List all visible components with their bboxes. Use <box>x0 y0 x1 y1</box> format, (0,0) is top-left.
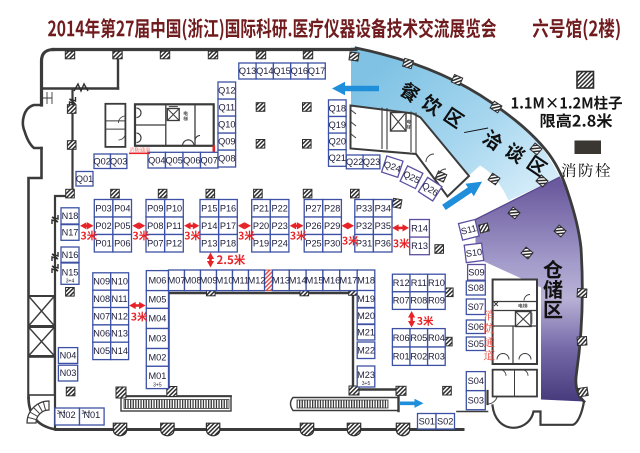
svg-text:P19: P19 <box>253 238 269 248</box>
svg-text:P13: P13 <box>201 238 217 248</box>
svg-text:N15: N15 <box>62 267 79 277</box>
svg-text:M19: M19 <box>357 294 375 304</box>
svg-text:R02: R02 <box>410 351 427 361</box>
svg-text:M02: M02 <box>148 353 166 363</box>
svg-text:Q21: Q21 <box>329 153 346 163</box>
svg-text:N13: N13 <box>111 329 128 339</box>
svg-text:M23: M23 <box>357 370 375 380</box>
svg-text:M05: M05 <box>148 295 166 305</box>
svg-text:R03: R03 <box>428 351 445 361</box>
svg-text:P08: P08 <box>147 221 163 231</box>
svg-text:S10: S10 <box>465 247 482 259</box>
svg-text:P20: P20 <box>253 221 269 231</box>
svg-text:3+4: 3+4 <box>57 410 66 416</box>
svg-text:M10: M10 <box>216 275 234 285</box>
svg-text:R14: R14 <box>411 223 428 233</box>
svg-text:Q14: Q14 <box>256 66 273 76</box>
svg-text:P16: P16 <box>220 203 236 213</box>
svg-text:P24: P24 <box>272 238 288 248</box>
svg-text:P06: P06 <box>114 238 130 248</box>
svg-text:Q01: Q01 <box>76 174 93 184</box>
svg-text:Q07: Q07 <box>201 155 218 165</box>
svg-text:S08: S08 <box>468 283 484 293</box>
svg-text:P10: P10 <box>166 203 182 213</box>
svg-text:P21: P21 <box>253 203 269 213</box>
svg-text:M03: M03 <box>148 334 166 344</box>
svg-text:N18: N18 <box>62 211 79 221</box>
svg-text:Q13: Q13 <box>239 66 256 76</box>
svg-text:P26: P26 <box>305 221 321 231</box>
svg-text:M13: M13 <box>272 275 290 285</box>
svg-text:3+5: 3+5 <box>153 383 162 389</box>
svg-text:P04: P04 <box>114 203 130 213</box>
svg-text:Q08: Q08 <box>218 154 235 164</box>
svg-text:N14: N14 <box>111 346 128 356</box>
svg-text:M18: M18 <box>357 275 375 285</box>
svg-text:Q03: Q03 <box>110 156 127 166</box>
svg-text:N03: N03 <box>60 368 77 378</box>
svg-text:P02: P02 <box>95 221 111 231</box>
svg-text:M11: M11 <box>232 275 249 285</box>
svg-text:Q17: Q17 <box>308 66 325 76</box>
svg-text:R13: R13 <box>411 241 428 251</box>
svg-text:S09: S09 <box>468 267 484 277</box>
svg-text:S02: S02 <box>437 416 453 426</box>
svg-text:Q05: Q05 <box>166 155 183 165</box>
svg-text:P17: P17 <box>220 221 236 231</box>
svg-text:N04: N04 <box>60 351 77 361</box>
svg-text:M17: M17 <box>339 275 357 285</box>
svg-text:R10: R10 <box>428 278 445 288</box>
svg-text:P32: P32 <box>356 221 372 231</box>
svg-text:3+4: 3+4 <box>66 278 75 284</box>
svg-text:M22: M22 <box>357 345 375 355</box>
svg-text:S07: S07 <box>468 302 484 312</box>
svg-text:M16: M16 <box>322 275 340 285</box>
svg-text:R05: R05 <box>410 333 427 343</box>
svg-text:N12: N12 <box>111 311 128 321</box>
svg-text:S04: S04 <box>468 376 484 386</box>
svg-text:M14: M14 <box>289 275 307 285</box>
svg-text:Q11: Q11 <box>218 103 235 113</box>
svg-text:Q19: Q19 <box>329 120 346 130</box>
svg-text:Q23: Q23 <box>363 157 380 167</box>
svg-text:Q20: Q20 <box>329 137 346 147</box>
svg-text:P07: P07 <box>147 238 163 248</box>
svg-text:Q22: Q22 <box>346 157 363 167</box>
svg-text:P36: P36 <box>375 238 391 248</box>
svg-text:3+5: 3+5 <box>362 381 371 387</box>
svg-text:P28: P28 <box>324 203 340 213</box>
svg-text:M21: M21 <box>357 327 375 337</box>
svg-text:P15: P15 <box>201 203 217 213</box>
svg-text:P23: P23 <box>272 221 288 231</box>
svg-text:P09: P09 <box>147 203 163 213</box>
svg-text:R11: R11 <box>411 278 427 288</box>
svg-text:M15: M15 <box>306 275 324 285</box>
svg-text:M20: M20 <box>357 311 375 321</box>
svg-text:N05: N05 <box>93 346 110 356</box>
svg-text:P31: P31 <box>356 238 372 248</box>
svg-text:S05: S05 <box>468 339 484 349</box>
svg-text:P18: P18 <box>220 238 236 248</box>
svg-text:Q09: Q09 <box>218 137 235 147</box>
svg-text:Q18: Q18 <box>329 103 346 113</box>
svg-text:P22: P22 <box>272 203 288 213</box>
svg-text:R09: R09 <box>428 296 445 306</box>
svg-text:P11: P11 <box>166 221 182 231</box>
svg-text:M04: M04 <box>148 314 166 324</box>
svg-text:P03: P03 <box>95 203 111 213</box>
svg-text:S01: S01 <box>419 416 435 426</box>
svg-text:R07: R07 <box>393 296 410 306</box>
svg-text:Q02: Q02 <box>94 156 111 166</box>
svg-text:P12: P12 <box>166 238 182 248</box>
svg-text:P33: P33 <box>356 203 372 213</box>
svg-text:P14: P14 <box>201 221 217 231</box>
svg-text:Q15: Q15 <box>273 66 290 76</box>
svg-text:N11: N11 <box>112 294 128 304</box>
svg-text:N16: N16 <box>62 250 79 260</box>
svg-text:P01: P01 <box>95 238 111 248</box>
svg-text:Q10: Q10 <box>218 120 235 130</box>
svg-text:P29: P29 <box>324 221 340 231</box>
svg-text:P35: P35 <box>375 221 391 231</box>
svg-text:P27: P27 <box>305 203 321 213</box>
svg-text:P30: P30 <box>324 238 340 248</box>
svg-text:P34: P34 <box>375 203 391 213</box>
svg-text:P05: P05 <box>114 221 130 231</box>
svg-text:M01: M01 <box>148 371 166 381</box>
svg-text:Q12: Q12 <box>218 86 235 96</box>
svg-text:S06: S06 <box>468 322 484 332</box>
svg-text:N08: N08 <box>93 294 110 304</box>
svg-text:P25: P25 <box>305 238 321 248</box>
svg-text:R12: R12 <box>393 278 410 288</box>
svg-text:N10: N10 <box>111 277 128 287</box>
svg-text:N07: N07 <box>93 311 110 321</box>
svg-text:Q04: Q04 <box>148 155 165 165</box>
svg-text:R04: R04 <box>428 333 445 343</box>
svg-text:M06: M06 <box>148 276 166 286</box>
svg-text:R01: R01 <box>393 351 410 361</box>
svg-text:N17: N17 <box>62 228 79 238</box>
svg-text:Q16: Q16 <box>291 66 308 76</box>
svg-text:3+4: 3+4 <box>82 410 91 416</box>
svg-text:R06: R06 <box>393 333 410 343</box>
svg-text:N06: N06 <box>93 329 110 339</box>
svg-text:N09: N09 <box>93 277 110 287</box>
svg-text:Q06: Q06 <box>183 155 200 165</box>
svg-text:R08: R08 <box>410 296 427 306</box>
svg-text:M12: M12 <box>248 275 266 285</box>
svg-text:S03: S03 <box>468 395 484 405</box>
